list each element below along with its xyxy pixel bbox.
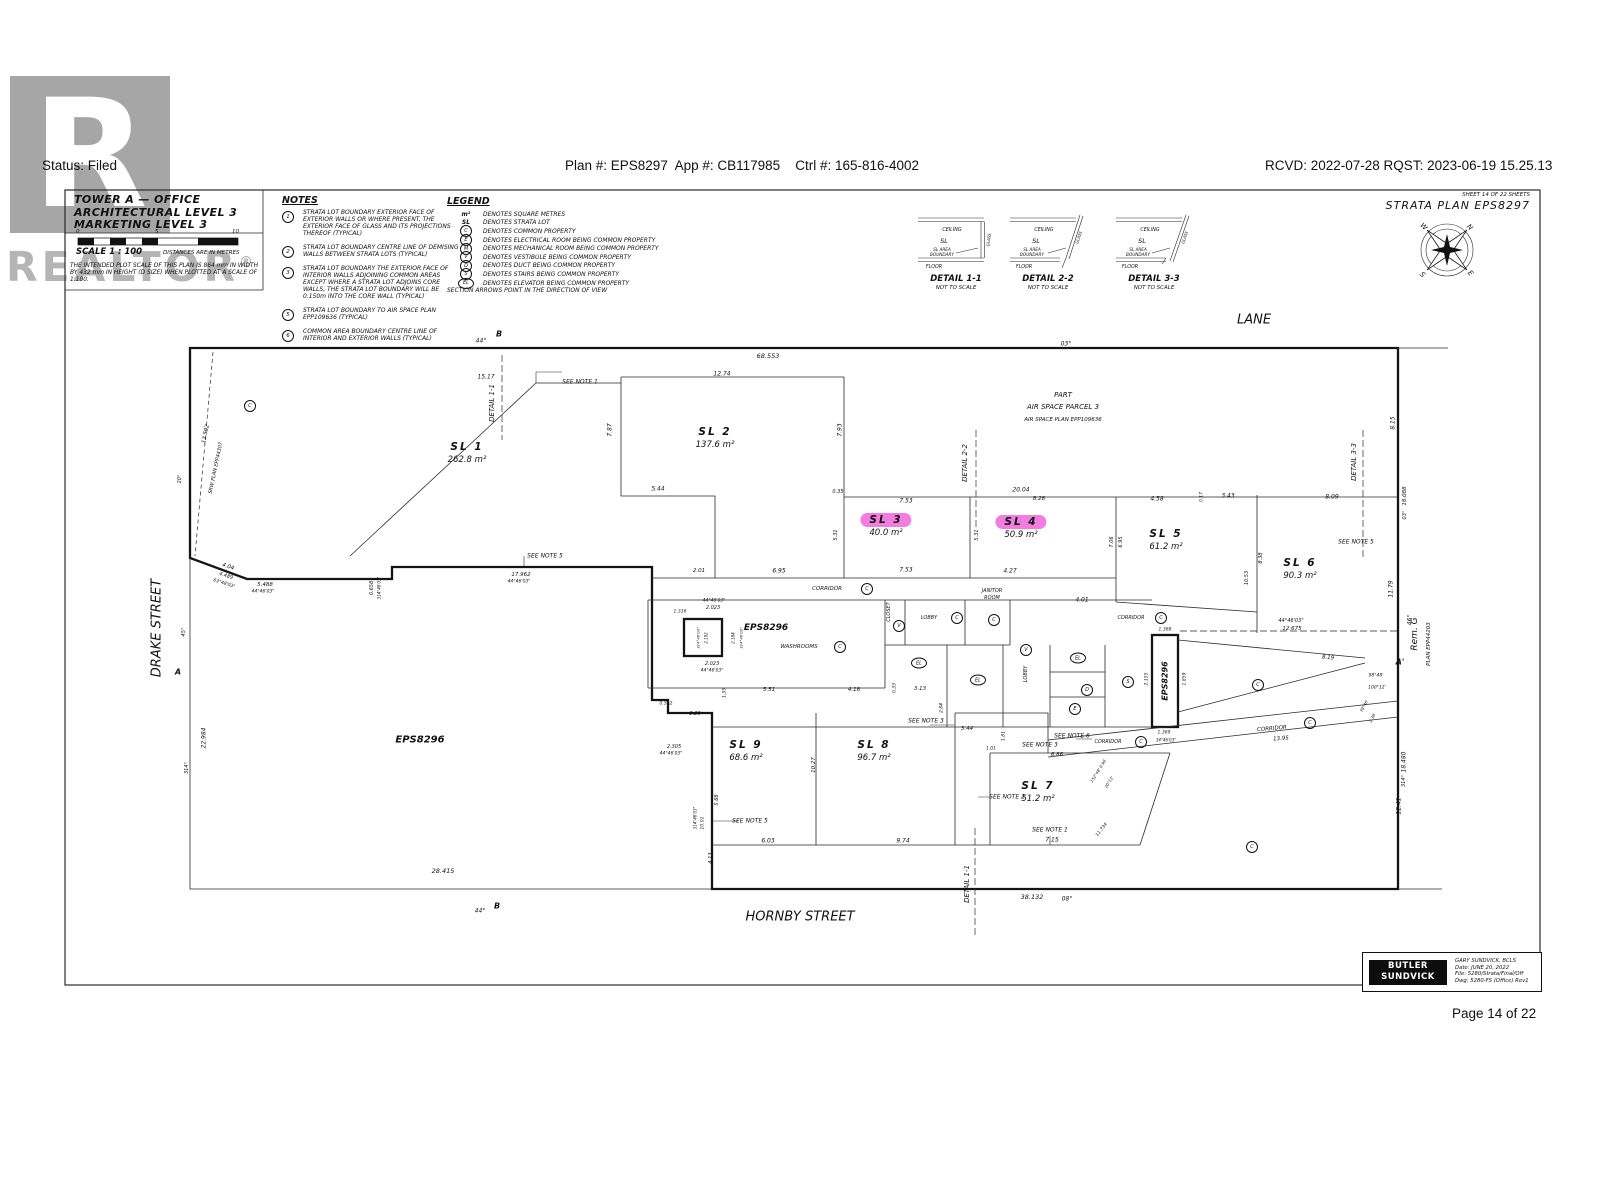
svg-text:CEILING: CEILING [1140,227,1159,233]
plan-annotation: 100°12' [1368,686,1386,691]
plan-annotation: 44°46'03" [701,669,724,674]
scale-tick-0: 0 [76,229,80,235]
plan-annotation: LOBBY [921,615,937,621]
common-property-symbol: V [893,620,905,632]
common-property-symbol: EL [1070,653,1086,664]
note-item-6: 6COMMON AREA BOUNDARY CENTRE LINE OF INT… [282,328,462,342]
plan-annotation: 7.06 [1109,536,1115,547]
plan-annotation: 3.43 [1221,493,1234,500]
plan-annotation: 2.84 [940,703,945,713]
plan-annotation: 4.01 [1075,597,1088,604]
plan-annotation: 20° [177,475,183,484]
plan-annotation: 10.01 [701,817,706,830]
note-item-1: 1STRATA LOT BOUNDARY EXTERIOR FACE OF EX… [282,209,462,237]
plan-annotation: 4.18 [848,687,860,693]
plan-annotation: DETAIL 3-3 [1350,443,1358,481]
plan-annotation: 1.368 [1159,628,1172,633]
received-timestamps: RCVD: 2022-07-28 RQST: 2023-06-19 15.25.… [1265,158,1552,173]
legend-header: LEGEND [447,196,490,207]
surveyor-firm-block: BUTLERSUNDVICK GARY SUNDVICK, BCLSDate: … [1362,952,1542,992]
plan-annotation: 03° [1402,511,1408,520]
plan-annotation: CORRIDOR [812,586,842,592]
plan-annotation: 44°46'03" [252,590,275,595]
plan-annotation: 1.81 [1002,731,1007,741]
distances-note: DISTANCES ARE IN METRES [163,250,240,256]
common-property-symbol: C [244,400,256,412]
note-item-3: 3STRATA LOT BOUNDARY THE EXTERIOR FACE O… [282,265,462,300]
plan-annotation: 08° [1062,896,1073,903]
svg-text:GLASS: GLASS [1180,230,1189,244]
plan-annotation: 5.68 [714,794,720,805]
plan-annotation: 6.86 [1051,752,1063,758]
plan-annotation: SEE NOTE 1 [562,379,598,386]
plan-annotation: 5.44 [651,486,664,493]
plan-annotation: 4.13 [708,852,714,863]
plan-linework: N E S W [0,0,1600,1200]
common-property-symbol: C [1155,612,1167,624]
plan-annotation: DETAIL 1-1 [488,384,496,422]
plan-annotation: 1.316 [674,610,687,615]
plan-annotation: 2.192 [704,632,709,643]
plan-annotation: 17.962 [511,572,530,578]
legend-row-m²: m²DENOTES SQUARE METRES [449,210,659,219]
plan-annotation: 34°46'03" [1156,738,1176,743]
plan-annotation: 44°46'03" [703,599,726,604]
plan-annotation: 5.31 [833,529,839,540]
plan-annotation: 44°46'03" [1278,618,1303,624]
common-property-symbol: C [1135,736,1147,748]
common-property-symbol: V [1020,644,1032,656]
legend-list: m²DENOTES SQUARE METRESSLDENOTES STRATA … [449,210,659,287]
plan-annotation: EPS8296 [395,735,444,746]
plan-annotation: 2.155 [1145,673,1150,686]
plan-annotation: 18.480 [1401,752,1408,773]
plan-annotation: SEE NOTE 6 [1054,733,1090,740]
lot-lines-thin [190,348,1448,889]
plan-annotation: 2.305 [667,744,681,750]
plan-annotation: 2.023 [705,661,719,667]
svg-text:GLASS: GLASS [985,233,992,247]
plan-annotation: 7.53 [899,498,912,505]
plan-annotation: 20.04 [1012,487,1029,494]
legend-footer: SECTION ARROWS POINT IN THE DIRECTION OF… [447,287,607,294]
plan-annotation: 314° [184,762,190,774]
plan-annotation: 6.95 [772,568,785,575]
plan-annotation: SEE NOTE 5 [1338,539,1374,546]
plan-annotation: DETAIL 2-2 [961,444,969,482]
lot-label-sl-6: SL 690.3 m² [1274,551,1325,581]
plan-annotation: 5.51 [763,687,775,693]
status-label: Status: Filed [42,158,117,173]
plan-annotation: 15.17 [477,374,494,381]
plan-annotation: DRAKE STREET [150,579,165,677]
lot-label-sl-9: SL 968.6 m² [720,733,771,763]
firm-info-lines: GARY SUNDVICK, BCLSDate: JUNE 20, 2022Fi… [1455,958,1529,984]
plan-annotation: 12.41 [1396,797,1403,814]
plan-annotation: CORRIDOR [1117,615,1144,621]
common-property-symbol: C [951,612,963,624]
plan-annotation: 28.415 [432,867,455,875]
common-property-symbol: C [1304,717,1316,729]
scale-tick-5: 5 [155,229,159,235]
svg-text:E: E [1466,269,1475,278]
plan-annotation: SEE NOTE 5 [527,553,563,560]
plan-annotation: 8.09 [1325,494,1338,501]
plan-annotation: 0.35 [832,489,843,495]
scale-label: SCALE 1 : 100 [76,247,142,257]
firm-info-line: GARY SUNDVICK, BCLS [1455,958,1529,965]
lot-label-sl-1: SL 1262.8 m² [441,435,492,465]
app-number: App #: CB117985 [675,158,781,173]
common-property-symbol: C [988,614,1000,626]
plan-annotation: 1.35 [723,688,728,698]
plan-annotation: 44° [476,338,487,345]
plan-annotation: A' [1396,658,1405,667]
notes-list: 1STRATA LOT BOUNDARY EXTERIOR FACE OF EX… [282,209,462,349]
plan-annotation: 3.44 [961,726,973,732]
plan-annotation: 8.15 [1390,416,1397,429]
common-property-symbol: D [1081,684,1093,696]
plan-annotation: 1.859 [1183,673,1188,686]
common-property-symbol: C [1252,679,1264,691]
plan-annotation: 8.19 [1322,654,1335,661]
lot-label-sl-8: SL 896.7 m² [848,733,899,763]
svg-text:FLOOR: FLOOR [926,264,942,270]
strata-plan-document-page: R REALTOR® Status: Filed Plan #: EPS8297… [0,0,1600,1200]
plan-number: Plan #: EPS8297 [565,158,668,173]
plan-annotation: CLOSET [886,602,892,621]
svg-text:GLASS: GLASS [1074,230,1083,244]
lot-label-sl-3: SL 340.0 m² [860,508,911,538]
svg-text:FLOOR: FLOOR [1122,264,1138,270]
common-property-symbol: C [834,641,846,653]
strata-plan-title: STRATA PLAN EPS8297 [1386,199,1530,212]
plan-annotation: EPS8296 [744,623,788,633]
plan-annotation: SEE NOTE 3 [908,718,944,725]
svg-text:CEILING: CEILING [1034,227,1053,233]
plan-annotation: 13.95 [1273,735,1289,742]
svg-text:FLOOR: FLOOR [1016,264,1032,270]
firm-info-line: Date: JUNE 20, 2022 [1455,965,1529,972]
svg-text:BOUNDARY: BOUNDARY [1020,252,1044,257]
notes-header: NOTES [282,195,318,206]
lot-label-sl-5: SL 561.2 m² [1140,522,1191,552]
plan-annotation: B [494,902,500,911]
plan-annotation: 314°46'03" [739,627,744,649]
plan-annotation: 2.01 [693,568,705,574]
svg-text:BOUNDARY: BOUNDARY [930,252,954,257]
firm-info-line: File: 5280/Strata/Final/Off [1455,971,1529,978]
plan-annotation: 3.13 [914,686,926,692]
plan-annotation: 1.01 [986,747,996,752]
svg-text:SL: SL [1032,237,1040,245]
note-item-2: 2STRATA LOT BOUNDARY CENTRE LINE OF DEMI… [282,244,462,258]
plan-annotation: WASHROOMS [780,644,817,650]
plan-annotation: A [175,668,181,677]
common-property-symbol: E [1069,703,1081,715]
common-property-symbol: EL [970,675,986,686]
plan-annotation: 44°46'03" [508,580,531,585]
page-number: Page 14 of 22 [1452,1006,1536,1021]
plan-annotation: 0.562 [660,702,673,707]
plan-annotation: 18.088 [1402,486,1408,505]
plan-annotation: PART [1054,391,1072,399]
plan-annotation: 10.27 [811,757,817,773]
plan-annotation: 10.53 [1244,571,1250,585]
plan-annotation: 44°46'03" [660,752,683,757]
common-property-symbol: C [861,583,873,595]
plan-annotation: SEE NOTE 1 [1032,827,1068,834]
plan-annotation: 9.74 [896,838,909,845]
compass-rose-icon: N E S W [1394,199,1498,303]
plan-annotation: 0.17 [1200,492,1205,502]
plan-annotation: 1.369 [1158,731,1171,736]
plan-annotation: SEE NOTE 3 [1022,742,1058,749]
plan-annotation: 12.675 [1282,626,1301,632]
firm-logo: BUTLERSUNDVICK [1369,960,1447,985]
plan-annotation: 7.15 [1045,837,1058,844]
plan-annotation: 8.28 [1033,496,1045,502]
drawing-title: TOWER A — OFFICE ARCHITECTURAL LEVEL 3 M… [74,194,237,232]
plan-annotation: 5.31 [974,529,980,540]
plan-annotation: 314°46'03" [377,577,382,600]
plan-annotation: 6.03 [761,838,774,845]
scale-bar [78,238,238,245]
strata-boundary-heavy [190,348,1398,889]
svg-text:CEILING: CEILING [942,227,961,233]
plan-annotation: 0.33 [893,683,898,693]
highlighted-lot: SL 4 [995,515,1046,529]
firm-info-line: Dwg: 5280-FS (Office) Rev1 [1455,978,1529,985]
plan-annotation: AIR SPACE PARCEL 3 [1027,403,1099,411]
lot-label-sl-4: SL 450.9 m² [995,510,1046,540]
lot-label-sl-2: SL 2137.6 m² [689,420,740,450]
common-property-symbol: S [1122,676,1134,688]
plot-scale-note: THE INTENDED PLOT SCALE OF THIS PLAN IS … [70,263,262,284]
plan-annotation: 22.984 [201,728,208,749]
plan-annotation: 12.74 [713,371,730,378]
plan-annotation: 46° [1407,615,1414,626]
detail-figure-2-2: CEILING SL SL AREA BOUNDARY FLOOR GLASS … [1004,206,1092,291]
note-item-5: 5STRATA LOT BOUNDARY TO AIR SPACE PLAN E… [282,307,462,321]
plan-annotation: 38.132 [1021,893,1044,901]
plan-annotation: HORNBY STREET [745,910,854,925]
plan-annotation: SEE NOTE 5 [732,818,768,825]
scale-tick-10: 10 [232,229,239,235]
plan-annotation: PLAN EPP44203 [1426,622,1432,666]
plan-annotation: 7.87 [607,423,614,436]
common-property-symbol: C [1246,841,1258,853]
plan-annotation: 68.553 [757,352,780,360]
plan-annotation: 98°48' [1369,674,1384,679]
highlighted-lot: SL 3 [860,513,911,527]
plan-annotation: 314°46'03" [693,807,698,830]
plan-annotation: 03° [1061,341,1072,348]
plan-annotation: B [496,330,502,339]
plan-annotation: 8.38 [1258,552,1264,563]
ctrl-number: Ctrl #: 165-816-4002 [795,158,919,173]
detail-figure-1-1: CEILING SL SL AREA BOUNDARY FLOOR GLASS … [912,206,1000,291]
svg-text:S: S [1418,270,1427,279]
plan-annotation: 314°46'03" [696,627,701,649]
plan-annotation: 2.023 [706,605,720,611]
svg-text:SL: SL [940,237,948,245]
plan-annotation: LOBBY [1023,666,1029,682]
plan-annotation: 6.95 [1118,536,1124,547]
plan-annotation: 0.658 [369,581,375,595]
plan-annotation: 5.488 [257,582,273,588]
plan-annotation: DETAIL 1-1 [963,865,971,903]
plan-annotation: 2.26 [689,711,700,717]
plan-annotation: AIR SPACE PLAN EPP109636 [1024,417,1101,423]
sheet-count: SHEET 14 OF 22 SHEETS [1462,192,1530,198]
plan-number-line: Plan #: EPS8297 App #: CB117985 Ctrl #: … [565,158,919,173]
svg-text:BOUNDARY: BOUNDARY [1126,252,1150,257]
plan-annotation: 2.184 [731,632,736,643]
common-property-symbol: EL [911,658,927,669]
plan-annotation: 7.53 [899,567,912,574]
plan-annotation: JANITOR [982,588,1003,594]
plan-annotation: 314° [1401,775,1407,787]
plan-annotation: 44° [475,908,486,915]
plan-annotation: 7.93 [837,423,844,436]
plan-annotation: 45° [181,628,187,637]
plan-annotation: EPS8296 [1161,661,1170,700]
plan-annotation: LANE [1237,313,1271,328]
svg-text:SL: SL [1138,237,1146,245]
plan-annotation: SEE NOTE 2 [989,794,1025,801]
plan-annotation: ROOM [984,595,1000,601]
plan-annotation: 4.27 [1003,568,1016,575]
plan-annotation: 4.58 [1150,496,1163,503]
plan-annotation: 11.79 [1388,580,1395,597]
detail-figure-3-3: CEILING SL SL AREA BOUNDARY FLOOR GLASS … [1110,206,1198,291]
plan-annotation: CORRIDOR [1094,739,1121,745]
